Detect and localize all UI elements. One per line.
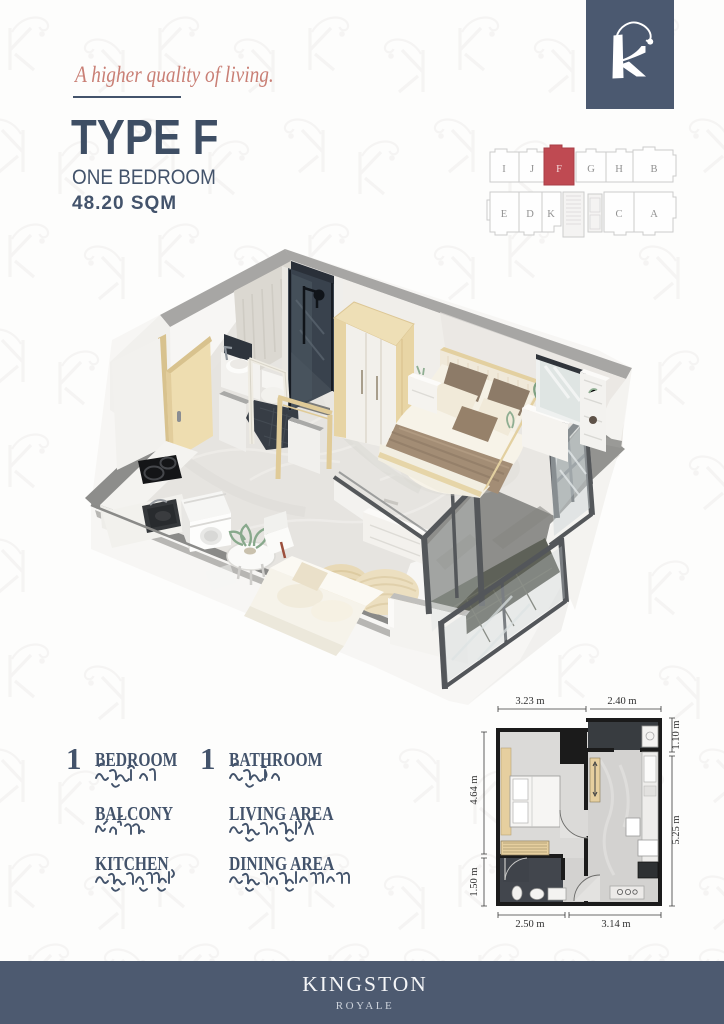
svg-text:5.25 m: 5.25 m [671, 815, 682, 844]
svg-text:1.10 m: 1.10 m [671, 720, 682, 749]
svg-text:1.50 m: 1.50 m [470, 867, 480, 896]
svg-text:2.40 m: 2.40 m [607, 696, 636, 707]
svg-text:3.14 m: 3.14 m [601, 919, 630, 930]
svg-text:4.64 m: 4.64 m [470, 775, 480, 804]
svg-text:3.23 m: 3.23 m [515, 696, 544, 707]
svg-text:2.50 m: 2.50 m [515, 919, 544, 930]
